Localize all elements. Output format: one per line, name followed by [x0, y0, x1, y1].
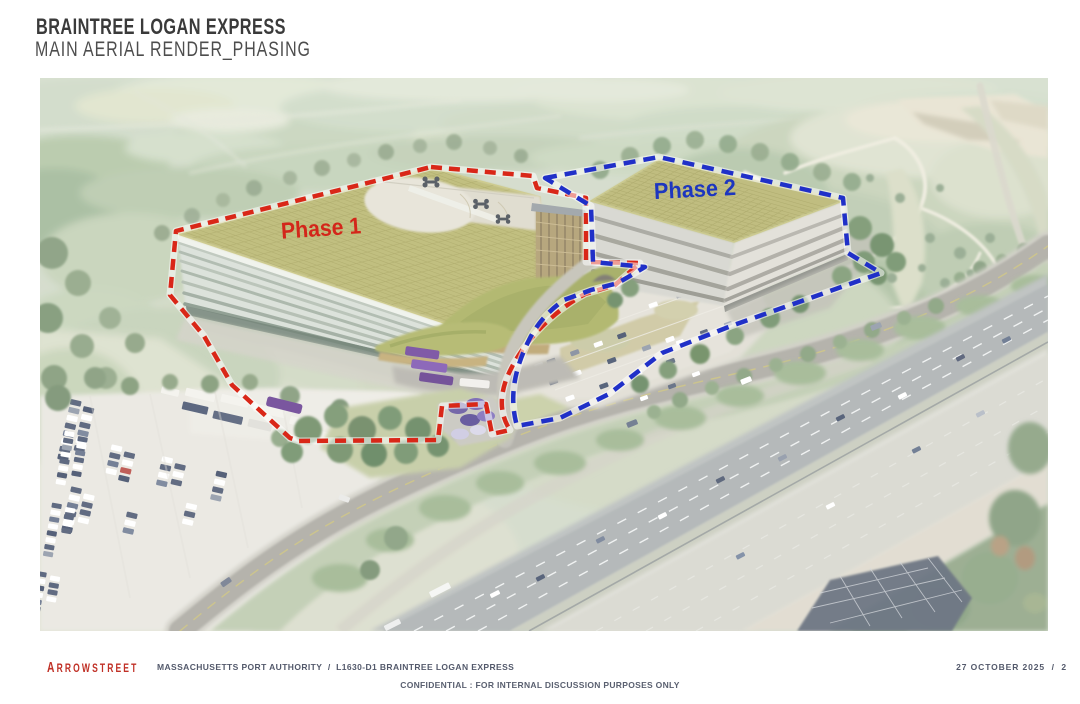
svg-text:Phase 2: Phase 2: [653, 174, 736, 204]
